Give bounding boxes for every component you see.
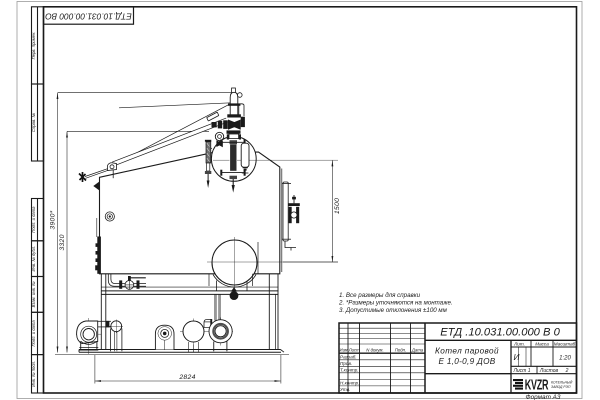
svg-text:Изм: Изм <box>340 348 348 353</box>
svg-text:2: 2 <box>565 368 569 374</box>
svg-text:Т.контр.: Т.контр. <box>340 368 359 373</box>
svg-text:Лист 1: Лист 1 <box>512 368 530 374</box>
svg-text:1500: 1500 <box>334 198 341 214</box>
svg-text:KVZR: KVZR <box>525 376 549 393</box>
svg-text:ЕТД.10.031.00.000 ВО: ЕТД.10.031.00.000 ВО <box>45 11 132 21</box>
svg-text:Пров.: Пров. <box>340 361 352 366</box>
svg-text:1. Все размеры для справки: 1. Все размеры для справки <box>339 292 421 299</box>
svg-text:ЗАВОД РЭП: ЗАВОД РЭП <box>551 385 571 389</box>
svg-text:Е 1,0-0,9 ДОВ: Е 1,0-0,9 ДОВ <box>439 357 496 366</box>
svg-text:Инв. № дубл.: Инв. № дубл. <box>31 246 36 272</box>
svg-text:Листов: Листов <box>539 368 559 374</box>
svg-text:Разраб.: Разраб. <box>340 355 357 360</box>
svg-text:3900*: 3900* <box>50 210 57 229</box>
svg-text:2824: 2824 <box>178 374 195 381</box>
svg-text:Утв.: Утв. <box>340 387 350 392</box>
svg-text:N докум.: N докум. <box>366 348 383 353</box>
svg-text:Лист: Лист <box>348 348 360 353</box>
svg-text:3320: 3320 <box>59 234 66 250</box>
svg-text:ЕТД .10.031.00.000 В 0: ЕТД .10.031.00.000 В 0 <box>440 327 560 339</box>
svg-text:КОТЕЛЬНЫЙ: КОТЕЛЬНЫЙ <box>551 380 573 384</box>
svg-text:Подп.: Подп. <box>395 348 406 353</box>
svg-text:Формат А3: Формат А3 <box>526 394 561 400</box>
svg-text:Справ. №: Справ. № <box>31 113 36 132</box>
svg-text:1:20: 1:20 <box>559 356 571 362</box>
svg-text:Подп. и дата: Подп. и дата <box>31 206 36 233</box>
svg-text:Дата: Дата <box>411 348 424 353</box>
svg-text:2. *Размеры уточняются на мон: 2. *Размеры уточняются на монтаже. <box>338 299 453 306</box>
svg-text:Взам. инв. №: Взам. инв. № <box>31 281 36 307</box>
svg-text:Перв. примен.: Перв. примен. <box>31 32 36 60</box>
svg-text:Котел паровой: Котел паровой <box>435 347 499 356</box>
svg-text:Масштаб: Масштаб <box>554 342 576 347</box>
svg-text:Подп. и дата: Подп. и дата <box>31 320 36 347</box>
svg-text:Масса: Масса <box>535 342 549 347</box>
svg-text:Н.контр.: Н.контр. <box>340 381 359 386</box>
svg-text:Лит.: Лит. <box>513 342 525 347</box>
svg-text:Инв. № подл.: Инв. № подл. <box>31 361 36 387</box>
svg-text:И: И <box>514 352 520 362</box>
svg-text:3. Допустимые отклонения ±10: 3. Допустимые отклонения ±100 мм <box>339 307 448 314</box>
